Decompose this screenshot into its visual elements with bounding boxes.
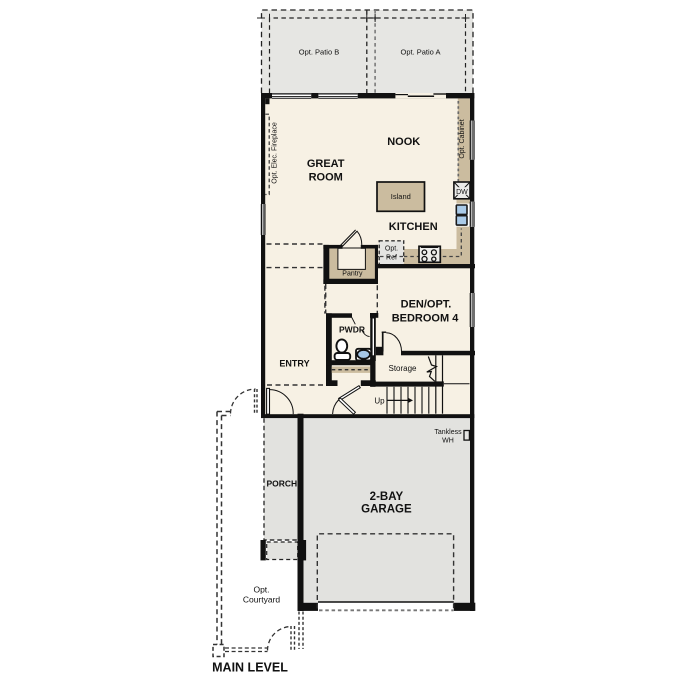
svg-text:Opt. Elec. Fireplace: Opt. Elec. Fireplace [272, 122, 279, 184]
svg-text:Opt. Cabinet: Opt. Cabinet [459, 119, 466, 158]
svg-text:DW: DW [456, 189, 468, 196]
svg-text:Pantry: Pantry [342, 270, 363, 277]
svg-text:ENTRY: ENTRY [279, 359, 309, 369]
svg-text:Up: Up [374, 397, 385, 406]
svg-text:ROOM: ROOM [309, 171, 343, 183]
svg-text:WH: WH [442, 438, 454, 445]
svg-text:Opt.: Opt. [253, 585, 269, 595]
svg-text:Island: Island [391, 192, 411, 201]
svg-text:PWDR: PWDR [339, 325, 365, 335]
svg-text:NOOK: NOOK [387, 136, 420, 148]
svg-text:Courtyard: Courtyard [243, 595, 281, 605]
svg-text:KITCHEN: KITCHEN [389, 221, 438, 233]
svg-text:Ref: Ref [386, 255, 397, 262]
svg-text:Opt. Patio B: Opt. Patio B [299, 47, 339, 56]
svg-text:2-BAY: 2-BAY [370, 491, 404, 503]
svg-text:GARAGE: GARAGE [361, 504, 412, 516]
svg-text:MAIN LEVEL: MAIN LEVEL [212, 661, 288, 675]
svg-text:GREAT: GREAT [307, 158, 345, 170]
svg-text:DEN/OPT.: DEN/OPT. [401, 299, 452, 311]
svg-text:Tankless: Tankless [434, 429, 462, 436]
svg-text:Opt. Patio A: Opt. Patio A [400, 47, 440, 56]
svg-text:PORCH: PORCH [266, 479, 297, 489]
svg-text:Opt.: Opt. [385, 246, 398, 253]
svg-text:Storage: Storage [388, 364, 417, 373]
svg-text:BEDROOM 4: BEDROOM 4 [392, 312, 460, 324]
